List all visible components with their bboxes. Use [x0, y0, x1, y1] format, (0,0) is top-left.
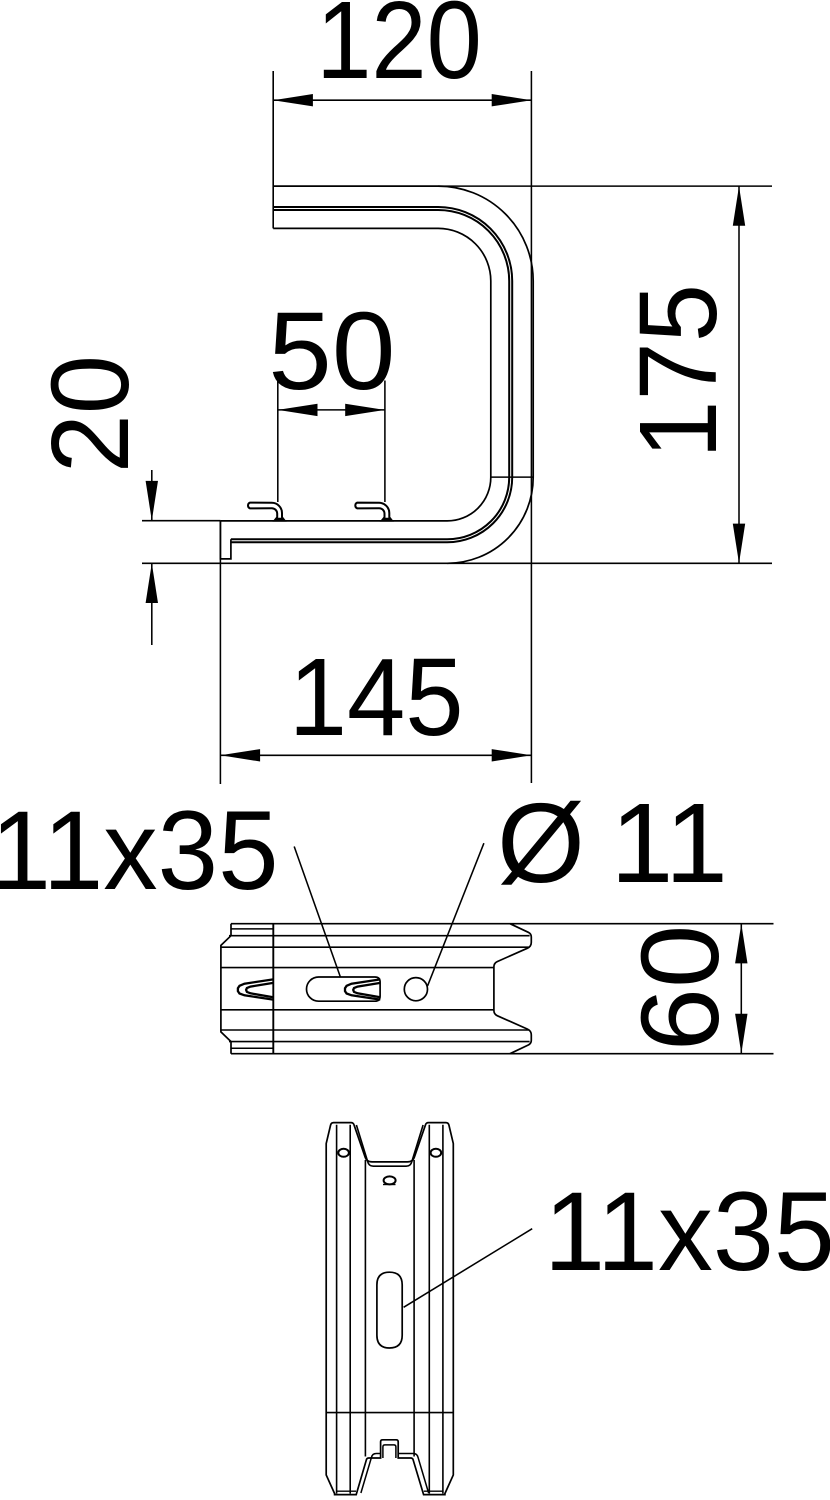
svg-text:11x35: 11x35 — [0, 788, 279, 913]
svg-text:145: 145 — [289, 636, 464, 759]
svg-text:20: 20 — [29, 355, 152, 473]
svg-text:11: 11 — [611, 780, 728, 906]
svg-text:60: 60 — [619, 925, 742, 1052]
svg-text:120: 120 — [316, 0, 482, 102]
svg-text:175: 175 — [617, 284, 740, 459]
svg-text:Ø: Ø — [497, 780, 585, 906]
svg-text:11x35: 11x35 — [544, 1169, 830, 1294]
svg-text:50: 50 — [268, 290, 395, 413]
